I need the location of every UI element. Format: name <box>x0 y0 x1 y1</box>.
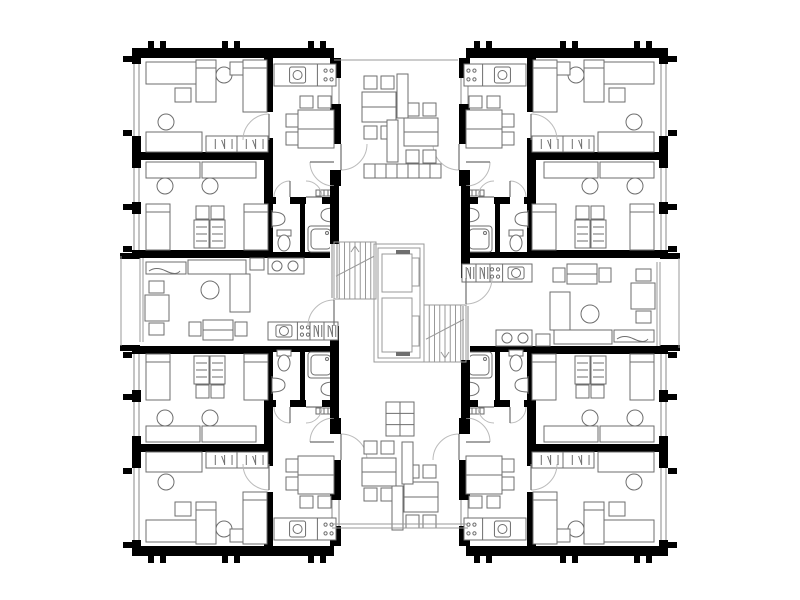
bed <box>196 502 216 544</box>
chair-round <box>518 333 528 343</box>
wall-tick <box>634 41 640 48</box>
chair <box>318 496 331 508</box>
wall <box>459 418 470 434</box>
chair-round <box>157 178 173 194</box>
bed <box>532 204 556 250</box>
wall-tick <box>222 556 228 563</box>
bed <box>196 60 216 102</box>
planter-box <box>430 164 441 178</box>
wall-tick <box>668 468 677 474</box>
chair <box>211 385 224 398</box>
door-arc <box>341 144 367 170</box>
chair-round <box>201 281 219 299</box>
chair <box>576 206 589 219</box>
wall-tick <box>668 130 677 136</box>
chair <box>576 385 589 398</box>
wall <box>532 346 668 354</box>
bed <box>244 354 268 400</box>
chair <box>189 322 201 336</box>
chair <box>381 441 394 454</box>
chair <box>599 268 611 282</box>
furniture-cabinet <box>146 62 196 84</box>
chair <box>406 150 419 163</box>
chair <box>636 269 651 281</box>
chair-round <box>272 261 282 271</box>
planter-box <box>364 164 375 178</box>
furniture-cabinet <box>146 132 202 152</box>
chair <box>286 114 298 127</box>
furniture-cabinet <box>631 283 655 309</box>
furniture-cabinet <box>146 162 200 178</box>
wall-tick <box>668 56 677 62</box>
planter-box <box>375 164 386 178</box>
chair <box>286 132 298 145</box>
chair <box>364 488 377 501</box>
elevator <box>382 298 412 352</box>
washbasin <box>272 376 285 394</box>
wall <box>524 197 532 204</box>
furniture-cabinet <box>145 295 169 321</box>
chair <box>250 258 264 270</box>
wall <box>330 186 339 244</box>
bed <box>584 60 604 102</box>
wall-tick <box>486 41 492 48</box>
chair <box>423 515 436 528</box>
furniture-cabinet <box>544 162 598 178</box>
wall-tick <box>308 41 314 48</box>
wall <box>132 346 268 354</box>
chair-round <box>626 114 642 130</box>
sofa <box>550 292 570 330</box>
door-arc <box>274 181 290 197</box>
chair <box>235 322 247 336</box>
wall <box>524 400 532 407</box>
chair <box>636 311 651 323</box>
window <box>659 168 668 202</box>
window <box>132 64 141 136</box>
window <box>132 468 141 540</box>
chair <box>286 459 298 472</box>
window <box>132 168 141 202</box>
furniture-cabinet <box>202 162 256 178</box>
wall <box>132 546 334 556</box>
wall-tick <box>668 204 677 210</box>
wall-tick <box>474 41 480 48</box>
chair <box>364 76 377 89</box>
wall-tick <box>668 542 677 548</box>
wall-tick <box>123 246 132 252</box>
furniture-cabinet <box>146 452 202 472</box>
washbasin <box>272 210 285 228</box>
wall <box>466 252 532 258</box>
wall-tick <box>123 56 132 62</box>
chair <box>149 281 164 293</box>
wall-tick <box>234 556 240 563</box>
wall <box>494 400 510 407</box>
chair <box>149 323 164 335</box>
chair <box>469 96 482 108</box>
furniture-cabinet <box>609 502 625 516</box>
washbasin <box>515 210 528 228</box>
wall <box>534 444 660 452</box>
privacy-screen <box>392 486 403 530</box>
wall <box>660 345 680 351</box>
chair <box>591 385 604 398</box>
chair <box>196 206 209 219</box>
furniture-cabinet <box>202 426 256 442</box>
bench <box>614 330 654 342</box>
chair-round <box>626 474 642 490</box>
chair-round <box>158 114 174 130</box>
wall-tick <box>234 41 240 48</box>
chair <box>300 496 313 508</box>
chair <box>536 334 550 346</box>
furniture-cabinet <box>146 520 196 542</box>
wall <box>268 197 276 204</box>
chair <box>300 96 313 108</box>
chair-round <box>627 178 643 194</box>
wc-bowl <box>278 355 290 371</box>
chair-round <box>581 305 599 323</box>
wall-tick <box>646 41 652 48</box>
wall <box>268 400 276 407</box>
furniture-cabinet <box>598 452 654 472</box>
bed <box>146 204 170 250</box>
chair <box>381 76 394 89</box>
chair <box>502 477 514 490</box>
wall-tick <box>668 394 677 400</box>
wall-tick <box>474 556 480 563</box>
elevator-door <box>396 352 410 356</box>
bed <box>532 354 556 400</box>
chair <box>502 459 514 472</box>
chair <box>487 96 500 108</box>
sofa <box>230 274 250 312</box>
furniture-cabinet <box>600 162 654 178</box>
wall-tick <box>320 41 326 48</box>
wall-tick <box>320 556 326 563</box>
elevator-door <box>396 250 410 254</box>
wall <box>140 152 266 160</box>
wall-tick <box>160 556 166 563</box>
bench <box>146 262 186 274</box>
wall-tick <box>668 352 677 358</box>
window <box>659 468 668 540</box>
sofa <box>554 330 612 344</box>
wall <box>330 170 341 186</box>
chair <box>196 385 209 398</box>
chair-round <box>202 178 218 194</box>
privacy-screen <box>397 74 408 118</box>
furniture-cabinet <box>609 88 625 102</box>
chair <box>286 477 298 490</box>
planter-box <box>386 164 397 178</box>
chair <box>502 132 514 145</box>
wall <box>132 48 334 58</box>
chair <box>211 206 224 219</box>
planter-box <box>419 164 430 178</box>
planter-box <box>408 164 419 178</box>
wall <box>300 200 305 252</box>
wall-tick <box>572 41 578 48</box>
chair <box>318 96 331 108</box>
wall <box>495 352 500 404</box>
floor-plan <box>0 0 800 600</box>
chair-round <box>582 410 598 426</box>
wall-tick <box>222 41 228 48</box>
window <box>659 214 668 250</box>
chair-round <box>502 333 512 343</box>
wall <box>466 48 668 58</box>
furniture-cabinet <box>175 502 191 516</box>
chair-round <box>157 410 173 426</box>
elevator <box>382 254 412 292</box>
wall <box>495 200 500 252</box>
wall <box>494 197 510 204</box>
door-arc <box>341 434 367 460</box>
chair <box>364 126 377 139</box>
wall <box>300 352 305 404</box>
chair <box>591 206 604 219</box>
wall-tick <box>123 468 132 474</box>
window <box>132 354 141 390</box>
wall-tick <box>123 542 132 548</box>
wall <box>120 253 140 259</box>
window <box>132 214 141 250</box>
furniture-cabinet <box>604 62 654 84</box>
elevator <box>378 248 420 358</box>
wall-tick <box>308 556 314 563</box>
wall <box>268 252 334 258</box>
chair <box>423 103 436 116</box>
chair <box>423 465 436 478</box>
wall <box>330 418 341 434</box>
door-arc <box>274 407 290 423</box>
wall-tick <box>668 246 677 252</box>
bed <box>630 204 654 250</box>
wall <box>140 444 266 452</box>
elevator <box>412 258 419 286</box>
wall-tick <box>123 130 132 136</box>
door-arc <box>510 181 526 197</box>
sofa <box>188 260 246 274</box>
door-arc <box>510 407 526 423</box>
wall-tick <box>123 204 132 210</box>
wall-tick <box>560 41 566 48</box>
window <box>659 354 668 390</box>
furniture-cabinet <box>146 426 200 442</box>
furniture-cabinet <box>604 520 654 542</box>
chair <box>553 268 565 282</box>
wall <box>660 253 680 259</box>
chair-round <box>158 474 174 490</box>
bed <box>146 354 170 400</box>
wall <box>290 197 306 204</box>
wall-tick <box>160 41 166 48</box>
floor-plan-canvas <box>0 0 800 600</box>
wc-bowl <box>510 355 522 371</box>
furniture-cabinet <box>175 88 191 102</box>
window <box>132 402 141 436</box>
wall-tick <box>123 394 132 400</box>
chair-round <box>202 410 218 426</box>
chair-round <box>288 261 298 271</box>
bed <box>584 502 604 544</box>
wall <box>466 546 668 556</box>
chair <box>469 496 482 508</box>
chair-round <box>627 410 643 426</box>
wall-tick <box>148 556 154 563</box>
wall <box>459 170 470 186</box>
wall-tick <box>646 556 652 563</box>
wall <box>461 360 470 418</box>
furniture-cabinet <box>600 426 654 442</box>
privacy-screen <box>387 120 398 162</box>
chair <box>364 441 377 454</box>
privacy-screen <box>402 442 413 484</box>
chair <box>502 114 514 127</box>
window <box>659 402 668 436</box>
wall-tick <box>486 556 492 563</box>
furniture-cabinet <box>544 426 598 442</box>
wall-tick <box>634 556 640 563</box>
wall-tick <box>572 556 578 563</box>
bed <box>630 354 654 400</box>
chair <box>406 515 419 528</box>
wall-tick <box>148 41 154 48</box>
wall <box>132 250 268 258</box>
wall-tick <box>560 556 566 563</box>
elevator <box>412 316 419 346</box>
wall <box>534 152 660 160</box>
wc-bowl <box>278 235 290 251</box>
wc-bowl <box>510 235 522 251</box>
planter-box <box>397 164 408 178</box>
wall <box>532 250 668 258</box>
chair <box>423 150 436 163</box>
wall <box>290 400 306 407</box>
wall <box>120 345 140 351</box>
door-arc <box>433 434 459 460</box>
chair-round <box>582 178 598 194</box>
furniture-cabinet <box>598 132 654 152</box>
bed <box>244 204 268 250</box>
chair <box>487 496 500 508</box>
washbasin <box>515 376 528 394</box>
window <box>659 64 668 136</box>
wall-tick <box>123 352 132 358</box>
